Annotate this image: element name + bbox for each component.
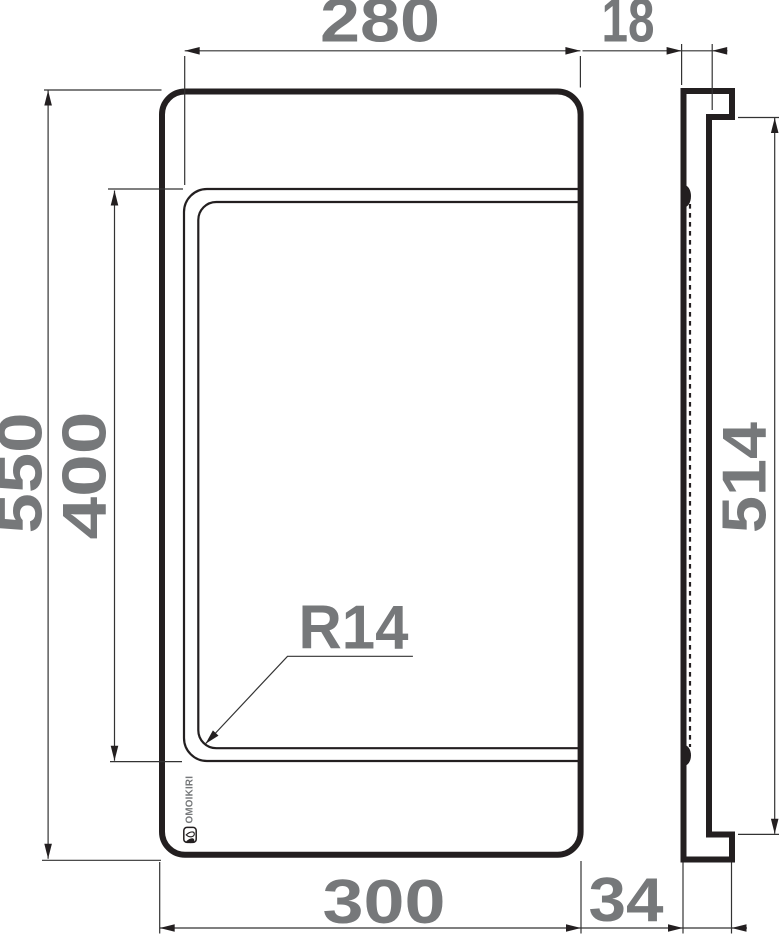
svg-text:18: 18 bbox=[602, 0, 655, 56]
svg-text:34: 34 bbox=[589, 866, 665, 935]
svg-text:OMOIKIRI: OMOIKIRI bbox=[185, 776, 196, 824]
svg-text:R14: R14 bbox=[299, 594, 409, 663]
svg-text:280: 280 bbox=[320, 0, 440, 56]
svg-text:550: 550 bbox=[0, 413, 56, 534]
svg-text:300: 300 bbox=[323, 868, 446, 936]
svg-text:400: 400 bbox=[51, 412, 120, 540]
svg-text:514: 514 bbox=[711, 421, 779, 533]
